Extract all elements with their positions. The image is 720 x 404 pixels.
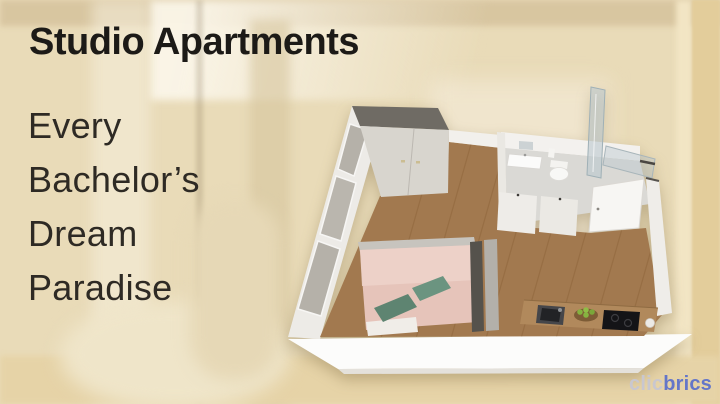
tagline-line: Every	[28, 99, 200, 153]
background-blurred-furniture	[60, 300, 290, 404]
tagline-line: Paradise	[28, 261, 200, 315]
background-blurred-furniture	[190, 200, 280, 380]
background-wall-panel	[250, 20, 290, 404]
bathroom-partition-wall	[497, 192, 537, 234]
clicbrics-logo: clicbrics	[629, 373, 712, 396]
page-title: Studio Apartments	[29, 20, 359, 64]
bathroom-partition-wall	[539, 196, 578, 236]
floorplan-bed	[358, 237, 478, 336]
tagline-line: Dream	[28, 207, 200, 261]
logo-prefix: clic	[629, 373, 663, 395]
bathroom-door	[589, 179, 644, 232]
tagline: Every Bachelor’s Dream Paradise	[28, 99, 200, 315]
kitchen-cooktop	[602, 310, 640, 331]
studio-floorplan-3d-image	[288, 82, 718, 380]
floorplan-base	[288, 334, 692, 374]
bathroom-sink	[507, 154, 542, 169]
floorplan-bathroom	[497, 87, 655, 236]
bathroom-mirror	[519, 141, 533, 150]
logo-suffix: brics	[663, 373, 712, 395]
thumbnail-canvas: Studio Apartments Every Bachelor’s Dream…	[0, 0, 720, 404]
tagline-line: Bachelor’s	[28, 153, 200, 207]
